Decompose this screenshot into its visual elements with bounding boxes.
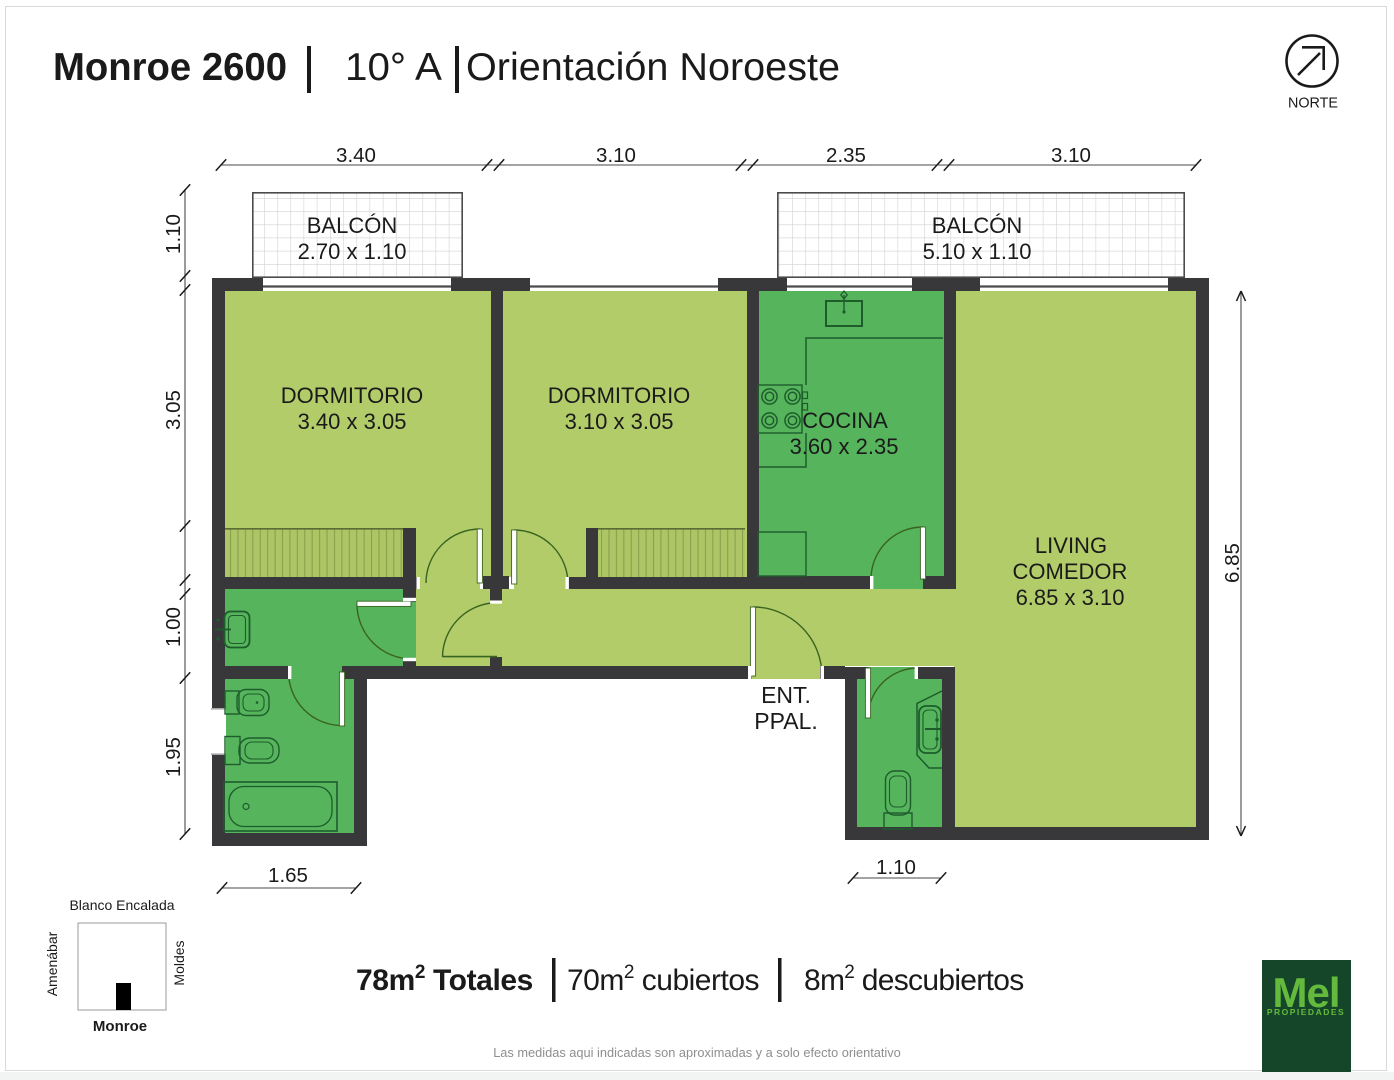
svg-text:BALCÓN: BALCÓN [307, 213, 397, 238]
svg-text:Monroe: Monroe [93, 1018, 147, 1035]
svg-text:LIVING: LIVING [1035, 533, 1107, 558]
svg-text:Monroe 2600: Monroe 2600 [53, 46, 287, 89]
svg-text:1.65: 1.65 [268, 864, 308, 887]
svg-text:70m2 cubiertos: 70m2 cubiertos [567, 962, 759, 997]
svg-text:Amenábar: Amenábar [44, 931, 60, 996]
svg-text:10° A: 10° A [345, 46, 442, 89]
svg-text:BALCÓN: BALCÓN [932, 213, 1022, 238]
svg-text:1.00: 1.00 [162, 607, 185, 647]
svg-text:PROPIEDADES: PROPIEDADES [1267, 1007, 1345, 1017]
svg-text:Blanco Encalada: Blanco Encalada [69, 897, 174, 913]
svg-text:Orientación Noroeste: Orientación Noroeste [466, 46, 840, 89]
svg-text:COCINA: COCINA [802, 408, 888, 433]
svg-text:2.70 x 1.10: 2.70 x 1.10 [298, 239, 407, 264]
svg-text:2.35: 2.35 [826, 144, 866, 167]
svg-text:5.10 x 1.10: 5.10 x 1.10 [923, 239, 1032, 264]
svg-text:3.05: 3.05 [162, 390, 185, 430]
svg-text:1.10: 1.10 [876, 856, 916, 879]
svg-text:1.95: 1.95 [162, 737, 185, 777]
svg-text:3.10: 3.10 [1051, 144, 1091, 167]
svg-text:3.10 x 3.05: 3.10 x 3.05 [565, 409, 674, 434]
svg-text:3.40 x 3.05: 3.40 x 3.05 [298, 409, 407, 434]
svg-text:COMEDOR: COMEDOR [1013, 559, 1128, 584]
svg-text:3.40: 3.40 [336, 144, 376, 167]
svg-text:ENT.: ENT. [761, 682, 811, 708]
svg-text:78m2 Totales: 78m2 Totales [356, 962, 533, 997]
svg-text:DORMITORIO: DORMITORIO [281, 383, 424, 408]
svg-text:6.85: 6.85 [1221, 543, 1244, 583]
svg-text:DORMITORIO: DORMITORIO [548, 383, 691, 408]
svg-text:3.60 x 2.35: 3.60 x 2.35 [790, 434, 899, 459]
svg-text:PPAL.: PPAL. [754, 708, 818, 734]
svg-text:Moldes: Moldes [171, 940, 187, 985]
svg-text:Las medidas aqui indicadas son: Las medidas aqui indicadas son aproximad… [493, 1045, 901, 1060]
svg-text:6.85 x 3.10: 6.85 x 3.10 [1016, 585, 1125, 610]
svg-text:NORTE: NORTE [1288, 95, 1338, 112]
svg-text:8m2 descubiertos: 8m2 descubiertos [804, 962, 1024, 997]
svg-text:3.10: 3.10 [596, 144, 636, 167]
svg-text:1.10: 1.10 [162, 214, 185, 254]
